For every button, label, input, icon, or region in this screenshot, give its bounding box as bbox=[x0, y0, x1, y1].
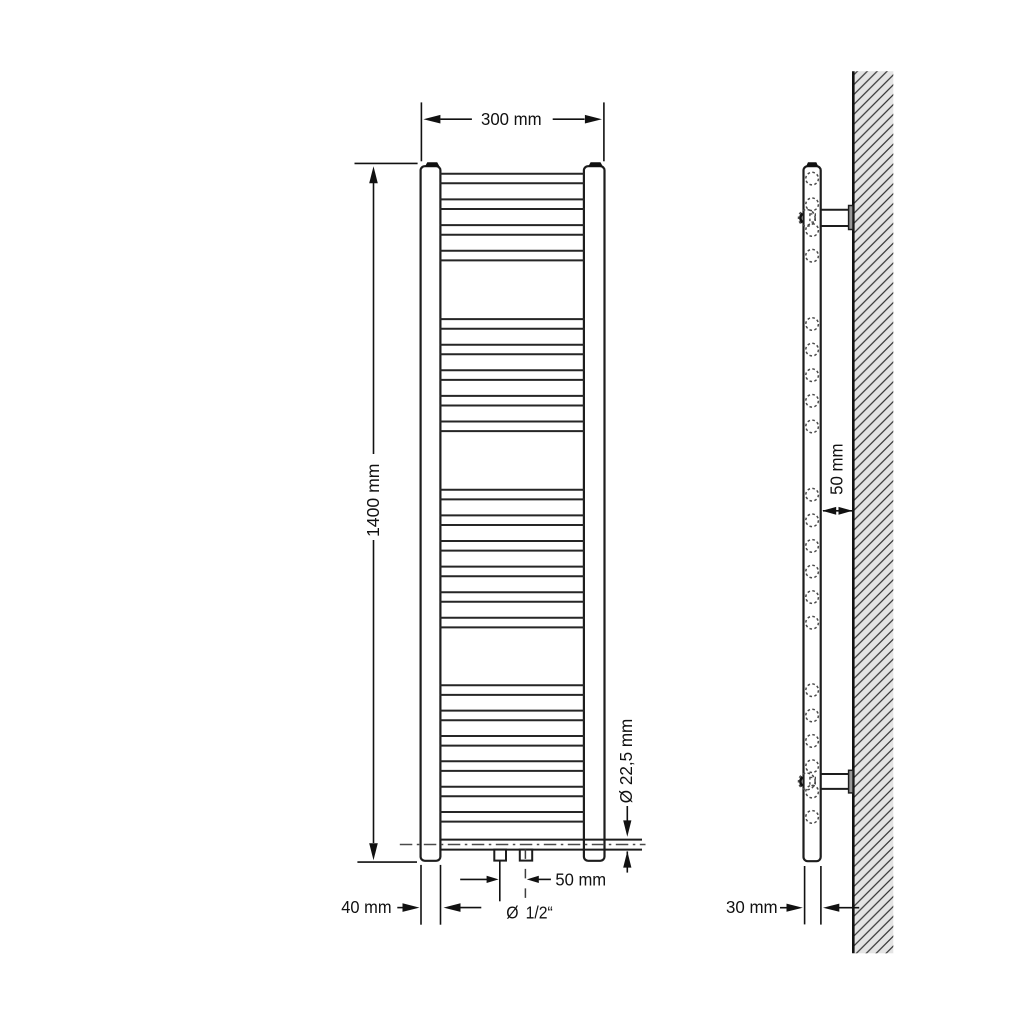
svg-text:300 mm: 300 mm bbox=[481, 109, 542, 129]
svg-text:40 mm: 40 mm bbox=[341, 897, 391, 917]
svg-text:1400 mm: 1400 mm bbox=[363, 464, 383, 538]
svg-text:1/2“: 1/2“ bbox=[526, 902, 553, 922]
svg-text:50 mm: 50 mm bbox=[555, 869, 606, 889]
svg-text:50 mm: 50 mm bbox=[827, 443, 847, 495]
svg-text:Ø: Ø bbox=[506, 902, 518, 922]
svg-text:30 mm: 30 mm bbox=[726, 897, 778, 917]
svg-text:Ø 22,5 mm: Ø 22,5 mm bbox=[616, 719, 636, 804]
